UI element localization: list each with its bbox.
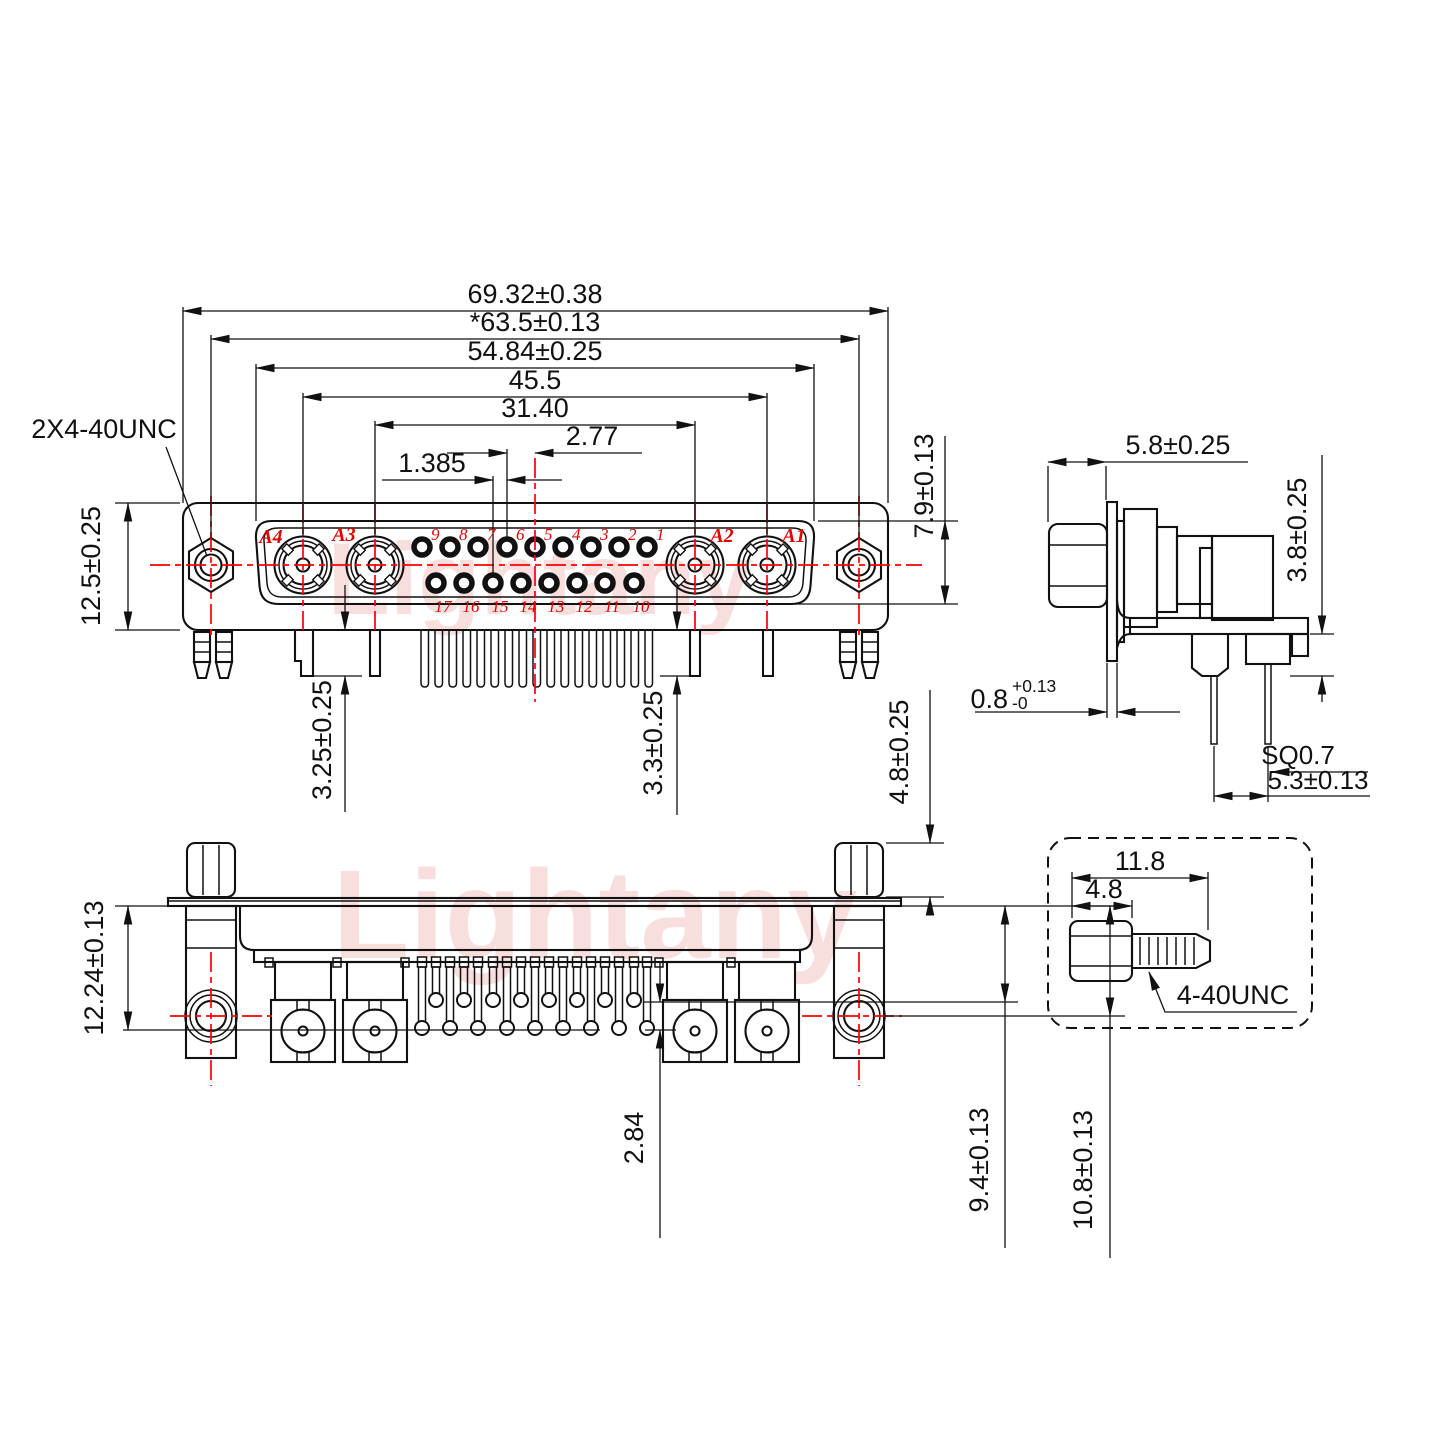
side-profile — [1049, 502, 1308, 744]
coax-leg-a2 — [690, 630, 700, 676]
dim-screw-head: 4.8 — [1085, 874, 1123, 904]
dim-short-pin-reach: 9.4±0.13 — [964, 1108, 994, 1213]
pin-number-6: 6 — [516, 525, 525, 544]
pin-number-1: 1 — [656, 525, 665, 544]
coax-label-a1: A1 — [780, 525, 805, 547]
dim-insert-width: 54.84±0.25 — [468, 336, 603, 366]
flange-collar — [1117, 521, 1124, 642]
flange-side — [1107, 502, 1117, 661]
side-pin-1 — [1211, 676, 1217, 744]
dim-pin-span: 5.3±0.13 — [1267, 765, 1368, 795]
pin-number-11: 11 — [604, 597, 620, 616]
coax-label-a2: A2 — [708, 525, 733, 547]
pin-number-16: 16 — [463, 597, 481, 616]
screw-head — [1070, 921, 1132, 981]
pin-number-17: 17 — [435, 597, 454, 616]
pin-number-14: 14 — [520, 597, 538, 616]
insulator-step2 — [1177, 536, 1212, 604]
technical-drawing: Lightany Lightany — [0, 0, 1440, 1440]
dim-flange-tol-minus: -0 — [1012, 693, 1028, 713]
pin-number-8: 8 — [459, 525, 468, 544]
coax-label-a4: A4 — [257, 526, 282, 548]
dim-screw-total: 11.8 — [1115, 846, 1166, 876]
coax-leg-a4 — [295, 630, 313, 676]
dim-hole-center-reach: 10.8±0.13 — [1068, 1110, 1098, 1230]
dim-coax-outer-span: 45.5 — [509, 365, 562, 395]
insulator-step3 — [1200, 548, 1212, 618]
side-pin-2 — [1265, 664, 1271, 744]
pin-number-3: 3 — [599, 525, 609, 544]
thread-callout: 2X4-40UNC — [31, 414, 177, 444]
dim-pin-pitch: 2.77 — [566, 421, 619, 451]
pin-number-4: 4 — [572, 525, 581, 544]
dim-bracket-height: 3.8±0.25 — [1282, 478, 1312, 583]
dim-body-height: 12.5±0.25 — [76, 506, 106, 626]
dim-flange-thickness: 0.8 — [970, 684, 1008, 714]
shell-back — [1124, 509, 1157, 627]
screw-detail: 11.8 4.8 4-40UNC — [1048, 838, 1312, 1028]
pin-number-12: 12 — [576, 597, 594, 616]
dim-standoff-height: 4.8±0.25 — [884, 700, 914, 805]
jackscrew-head-side — [1049, 524, 1107, 607]
pin-number-9: 9 — [431, 525, 440, 544]
dim-flange-to-center: 12.24±0.13 — [79, 901, 109, 1036]
coax-label-a3: A3 — [330, 524, 355, 546]
pin-number-2: 2 — [628, 525, 637, 544]
standoff-left — [187, 843, 235, 897]
thread-lines — [1140, 937, 1194, 965]
dim-row-gap: 2.84 — [619, 1112, 649, 1165]
drawing-page: Lightany Lightany — [0, 0, 1440, 1440]
screw-thread-shaft — [1132, 934, 1210, 968]
dim-row-offset: 1.385 — [398, 448, 466, 478]
dim-screw-span: *63.5±0.13 — [470, 307, 600, 337]
dim-coax-inner-span: 31.40 — [501, 393, 569, 423]
coax-leg-a1 — [763, 630, 773, 676]
side-view: 5.8±0.25 3.8±0.25 0.8 +0.13 -0 SQ0.7 5.3… — [970, 430, 1370, 802]
pin-number-15: 15 — [492, 597, 509, 616]
pin-number-10: 10 — [633, 597, 651, 616]
contact-block-a — [1192, 634, 1228, 676]
pin-comb — [421, 631, 653, 687]
pin-number-13: 13 — [548, 597, 565, 616]
dim-tail-a2: 3.3±0.25 — [638, 691, 668, 796]
board-lock-feet — [194, 632, 878, 678]
pin-number-5: 5 — [544, 525, 553, 544]
coax-housing-side — [1212, 536, 1273, 620]
dim-insert-height: 7.9±0.13 — [909, 434, 939, 539]
coax-leg-a3 — [370, 630, 380, 676]
dim-overall-width: 69.32±0.38 — [468, 279, 603, 309]
bottom-view: 4.8±0.25 12.24±0.13 2.84 9.4±0.13 10.8±0… — [79, 690, 1125, 1258]
contact-block-b — [1246, 634, 1290, 664]
dim-tail-a4: 3.25±0.25 — [307, 680, 337, 800]
insulator-step1 — [1157, 527, 1177, 612]
screw-thread-label: 4-40UNC — [1177, 980, 1290, 1010]
dim-front-depth: 5.8±0.25 — [1126, 430, 1231, 460]
contact-block-c — [1292, 634, 1308, 656]
solder-legs — [194, 630, 878, 687]
